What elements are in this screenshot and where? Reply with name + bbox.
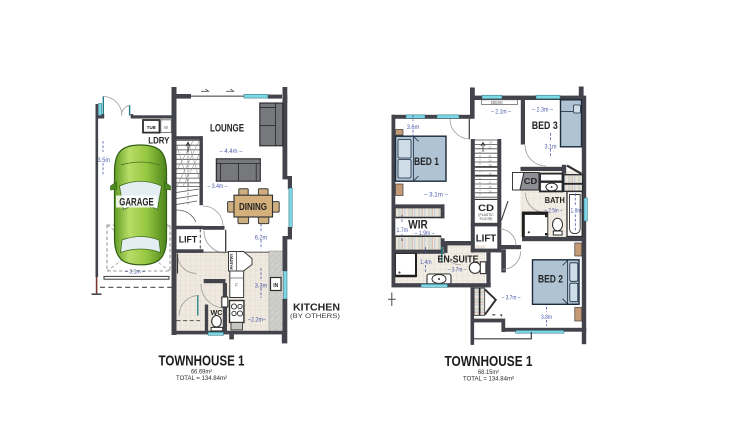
- svg-text:23: 23: [489, 145, 492, 149]
- svg-text:24: 24: [489, 140, 492, 144]
- svg-text:3.6m: 3.6m: [407, 124, 420, 131]
- svg-text:TOTAL = 134.84m²: TOTAL = 134.84m²: [176, 376, 227, 382]
- svg-text:1.8m: 1.8m: [571, 207, 582, 214]
- svg-text:LIFT: LIFT: [179, 234, 198, 245]
- svg-text:3.1m: 3.1m: [545, 143, 557, 150]
- svg-text:18: 18: [489, 172, 492, 176]
- svg-text:WC: WC: [211, 308, 224, 317]
- svg-text:LDRY: LDRY: [148, 136, 169, 146]
- svg-text:– 1.9m –: – 1.9m –: [415, 230, 435, 237]
- svg-text:GARAGE: GARAGE: [119, 197, 154, 209]
- svg-text:W: W: [164, 125, 168, 130]
- svg-text:–2.2m–: –2.2m–: [248, 316, 266, 323]
- svg-text:– 2.3m –: – 2.3m –: [532, 107, 553, 114]
- svg-text:68.15m²: 68.15m²: [478, 370, 499, 376]
- svg-text:(BY OTHERS): (BY OTHERS): [290, 313, 340, 320]
- svg-text:– 3.7m –: – 3.7m –: [448, 266, 467, 273]
- svg-text:19: 19: [489, 163, 492, 167]
- svg-text:16: 16: [489, 185, 492, 189]
- svg-text:– 2.1m –: – 2.1m –: [491, 109, 511, 116]
- svg-text:– 4.4m –: – 4.4m –: [220, 148, 244, 155]
- svg-text:– 3.7m –: – 3.7m –: [502, 294, 521, 301]
- svg-text:DESK: DESK: [491, 100, 503, 105]
- svg-text:F: F: [235, 283, 238, 288]
- svg-text:– 3.4m –: – 3.4m –: [208, 183, 228, 190]
- svg-text:PANTRY: PANTRY: [229, 253, 234, 269]
- svg-text:LOUNGE: LOUNGE: [210, 123, 244, 135]
- svg-text:1.7m: 1.7m: [397, 227, 409, 234]
- svg-text:1.4m: 1.4m: [420, 259, 432, 266]
- svg-text:FLOOR): FLOOR): [480, 217, 493, 221]
- svg-text:BED 3: BED 3: [532, 120, 558, 132]
- svg-text:BATH: BATH: [545, 196, 565, 205]
- svg-text:TOWNHOUSE 1: TOWNHOUSE 1: [159, 353, 245, 369]
- svg-text:CD: CD: [524, 176, 538, 186]
- svg-text:– 3.1m –: – 3.1m –: [125, 269, 145, 276]
- svg-text:IN: IN: [273, 283, 278, 289]
- svg-text:6.2m: 6.2m: [255, 235, 268, 242]
- svg-text:TOWNHOUSE 1: TOWNHOUSE 1: [445, 354, 533, 370]
- svg-text:3.5m: 3.5m: [98, 157, 111, 164]
- svg-text:3.8m: 3.8m: [541, 314, 552, 321]
- svg-text:LIFT: LIFT: [476, 234, 497, 245]
- svg-text:21: 21: [489, 154, 492, 158]
- svg-text:DINING: DINING: [239, 202, 267, 213]
- svg-text:BED 1: BED 1: [414, 156, 439, 168]
- svg-text:BED 2: BED 2: [538, 273, 563, 285]
- svg-text:20: 20: [489, 159, 492, 163]
- svg-text:3.3m: 3.3m: [255, 283, 268, 290]
- svg-text:– 2.5m –: – 2.5m –: [545, 207, 563, 214]
- svg-text:66.69m²: 66.69m²: [191, 369, 212, 375]
- svg-text:– 3.1m –: – 3.1m –: [424, 191, 449, 198]
- svg-text:TOTAL = 134.84m²: TOTAL = 134.84m²: [463, 376, 514, 382]
- svg-text:TUB: TUB: [147, 125, 156, 130]
- svg-text:17: 17: [489, 181, 492, 185]
- svg-text:15: 15: [489, 190, 492, 194]
